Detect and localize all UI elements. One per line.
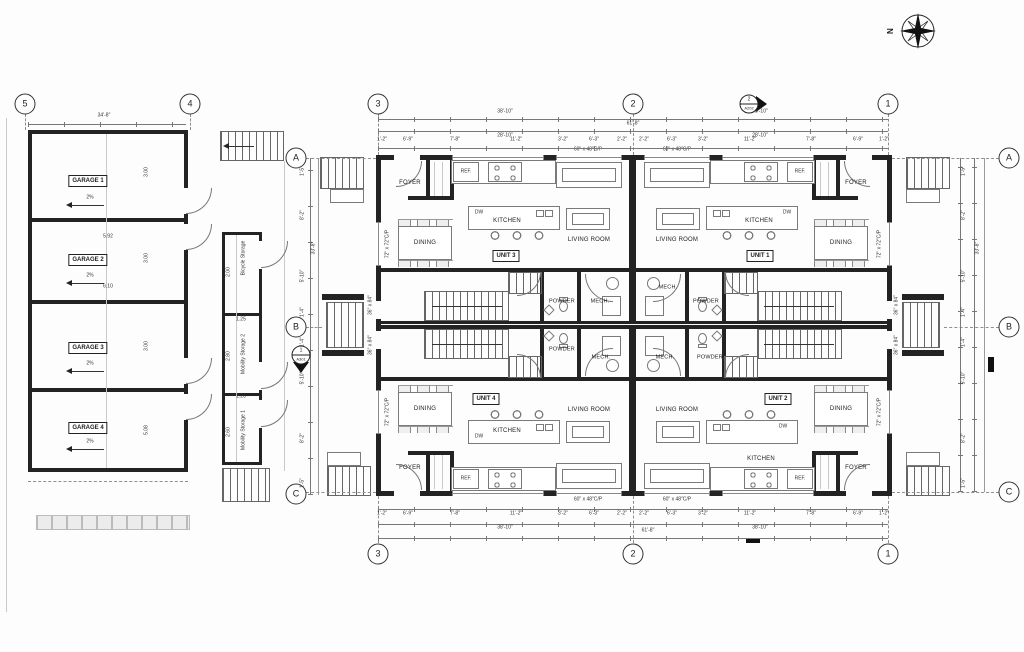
kitchen-label: KITCHEN — [745, 218, 773, 224]
line — [820, 455, 821, 489]
garage-wall — [28, 130, 188, 134]
dim-label: 2.80 — [227, 351, 232, 361]
mech-label: MECH. — [592, 355, 611, 361]
stairs — [326, 302, 364, 348]
dim-label: 34'-8" — [98, 114, 111, 119]
grid-leader-line — [306, 492, 376, 493]
island-sink — [536, 424, 544, 431]
floor-plan-sheet: N 34'-8" GARAGE 1 GARAGE 2 GARAGE 3 GARA… — [0, 0, 1024, 652]
dim-label: 2'-2" — [617, 512, 627, 517]
dining-chairs — [398, 219, 453, 226]
slope-arrow — [72, 205, 104, 206]
party-wall — [381, 321, 887, 329]
coffee-table-top — [572, 213, 604, 225]
wall-opening — [887, 301, 892, 319]
living-room-label: LIVING ROOM — [568, 237, 610, 243]
dim-label: 38'-10" — [497, 526, 513, 531]
line — [434, 455, 435, 489]
grid-bubble-3: 3 — [368, 94, 389, 115]
powder-label: POWDER — [693, 299, 719, 305]
dim-label: 33'-8" — [312, 242, 317, 255]
closet-wall — [812, 451, 840, 455]
dim-label: 1.20 — [236, 395, 246, 400]
dim-label: 33'-8" — [976, 242, 981, 255]
sink — [711, 330, 722, 341]
sink — [711, 304, 722, 315]
wall-opening — [887, 331, 892, 349]
dim-label: 3'-2" — [558, 138, 568, 143]
line — [442, 162, 443, 196]
storage-wall — [222, 462, 262, 465]
line — [432, 306, 502, 307]
stools — [716, 410, 782, 419]
grid-bubble-C: C — [999, 482, 1020, 503]
window — [452, 491, 544, 496]
window-tag: 72" x 72"C/P — [386, 398, 391, 426]
dim-line — [308, 158, 313, 495]
dim-label: 6'-9" — [853, 138, 863, 143]
door-arc — [186, 394, 212, 420]
foyer-wall — [836, 451, 840, 491]
dim-label: 1'-2" — [879, 138, 889, 143]
foyer-label: FOYER — [399, 465, 421, 471]
arrow-head-icon — [66, 280, 72, 286]
garage-3-label: GARAGE 3 — [68, 342, 107, 354]
dining-chairs — [814, 260, 869, 267]
dim-label: 61'-8" — [642, 529, 655, 534]
foyer-wall — [426, 451, 430, 491]
window-tag: 36" x 84" — [369, 295, 374, 315]
arrow-head-icon — [223, 143, 229, 149]
window — [376, 390, 381, 434]
foyer-label: FOYER — [399, 180, 421, 186]
sink — [543, 330, 554, 341]
garage-1-label: GARAGE 1 — [68, 175, 107, 187]
stools — [716, 231, 782, 240]
dim-label: 1'-5" — [301, 478, 306, 488]
dim-label: 3.00 — [145, 253, 150, 263]
living-room-label: LIVING ROOM — [656, 237, 698, 243]
dim-label: 1'-5" — [301, 166, 306, 176]
stairs — [906, 157, 950, 189]
grid-bubble-3: 3 — [368, 544, 389, 565]
interior-wall — [636, 377, 887, 381]
island-sink — [536, 210, 544, 217]
sofa-seat — [562, 469, 616, 483]
stair-landing — [906, 452, 940, 466]
dim-label: 6'-9" — [403, 138, 413, 143]
interior-wall — [577, 272, 581, 321]
island-sink — [722, 210, 730, 217]
dim-label: 61'-8" — [627, 122, 640, 127]
dim-line — [972, 158, 977, 492]
coffee-table-top — [662, 426, 694, 438]
fridge-label: REF. — [461, 170, 472, 175]
dim-label: 3'-2" — [698, 512, 708, 517]
closet-wall — [812, 196, 840, 200]
dim-label: 1'-2" — [377, 512, 387, 517]
dim-line — [378, 146, 888, 151]
grid-bubble-2: 2 — [623, 94, 644, 115]
powder-label: POWDER — [549, 299, 575, 305]
window-tag: 72" x 72"C/P — [878, 398, 883, 426]
dining-chairs — [398, 260, 453, 267]
island-sink — [713, 424, 721, 431]
stairs — [222, 468, 270, 502]
grid-bubble-2: 2 — [623, 544, 644, 565]
door-arc — [186, 358, 212, 384]
interior-wall — [685, 329, 689, 377]
parking-pavers — [36, 515, 190, 530]
dim-label: 5'-10" — [301, 372, 306, 385]
dim-line — [28, 122, 186, 127]
dim-label: 5.92 — [103, 235, 113, 240]
dim-label: 6.10 — [103, 285, 113, 290]
door-arc — [653, 348, 681, 376]
door-arc — [585, 348, 613, 376]
window-tag: 36" x 84" — [895, 335, 900, 355]
arrow-head-icon — [66, 446, 72, 452]
stair-landing — [330, 189, 364, 203]
unit-1-label: UNIT 1 — [746, 250, 773, 262]
dim-label: 1'-5" — [962, 166, 967, 176]
dim-label: 3.00 — [145, 341, 150, 351]
kitchen-label: KITCHEN — [747, 456, 775, 462]
dim-label: 1'-4" — [962, 307, 967, 317]
storage-room-label: Mobility Storage 1 — [242, 410, 247, 450]
dim-label: 6'-3" — [667, 512, 677, 517]
closet-wall — [426, 196, 454, 200]
stair-landing — [327, 452, 361, 466]
slope-arrow — [72, 283, 104, 284]
north-label: N — [887, 28, 895, 34]
toilet — [559, 333, 568, 344]
dining-label: DINING — [414, 240, 436, 246]
dim-label: 1.25 — [236, 318, 246, 323]
door-arc — [186, 224, 212, 250]
dining-label: DINING — [830, 240, 852, 246]
stools — [484, 231, 550, 240]
grid-leader-line — [888, 114, 889, 155]
dining-chairs — [398, 385, 453, 392]
dim-line — [318, 158, 319, 495]
garage-wall — [28, 218, 188, 222]
dim-label: 6'-9" — [403, 512, 413, 517]
line — [432, 344, 502, 345]
dim-label: 11'-2" — [510, 512, 522, 517]
unit-4-label: UNIT 4 — [472, 393, 499, 405]
dim-line — [378, 522, 888, 527]
foyer-wall — [836, 160, 840, 200]
line — [442, 455, 443, 489]
dim-label: 5'-10" — [301, 270, 306, 283]
closet-wall — [426, 451, 454, 455]
dining-label: DINING — [414, 406, 436, 412]
line — [828, 455, 829, 489]
powder-label: POWDER — [549, 347, 575, 353]
dim-label: 3'-2" — [698, 138, 708, 143]
coffee-table-top — [662, 213, 694, 225]
line — [28, 481, 188, 482]
section-cut-bar — [988, 357, 994, 372]
dishwasher-label: DW — [779, 425, 787, 430]
grid-bubble-5: 5 — [15, 94, 36, 115]
foyer-wall — [426, 160, 430, 200]
dining-chairs — [814, 385, 869, 392]
kitchen-label: KITCHEN — [493, 218, 521, 224]
line — [434, 162, 435, 196]
wall-opening — [376, 331, 381, 349]
interior-wall — [577, 329, 581, 377]
window — [556, 491, 622, 496]
dim-label: 11'-2" — [510, 138, 522, 143]
stools — [484, 410, 550, 419]
garage-wall — [28, 388, 188, 392]
garage-4-label: GARAGE 4 — [68, 422, 107, 434]
dim-label: 1'-5" — [962, 478, 967, 488]
storage-room-label: Mobility Storage 2 — [242, 334, 247, 374]
living-room-label: LIVING ROOM — [568, 407, 610, 413]
slope-label: 2% — [86, 362, 93, 367]
sofa-seat — [650, 469, 704, 483]
grid-leader-line — [892, 492, 999, 493]
dim-label: 7'-8" — [806, 512, 816, 517]
stairs — [320, 157, 364, 189]
window — [887, 390, 892, 434]
grid-bubble-1: 1 — [878, 94, 899, 115]
interior-wall — [381, 268, 629, 272]
dim-label: 6'-3" — [667, 138, 677, 143]
dim-label: 7'-8" — [806, 138, 816, 143]
line — [6, 118, 7, 612]
stairs — [902, 302, 940, 348]
stair-wall — [902, 350, 944, 356]
wall-opening — [394, 155, 420, 160]
north-compass-icon — [897, 10, 939, 52]
dim-label: 5.08 — [145, 425, 150, 435]
sofa-seat — [650, 168, 704, 182]
door-arc — [186, 188, 212, 214]
dim-label: 1'-2" — [377, 138, 387, 143]
garage-wall — [28, 468, 188, 472]
arrow-head-icon — [66, 202, 72, 208]
dim-label: 8'-2" — [962, 433, 967, 443]
dim-label: 2.60 — [227, 427, 232, 437]
fridge-label: REF. — [795, 477, 806, 482]
dim-label: 38'-10" — [752, 526, 768, 531]
coffee-table-top — [572, 426, 604, 438]
sink — [543, 304, 554, 315]
dim-label: 1'-4" — [301, 307, 306, 317]
dishwasher-label: DW — [783, 211, 791, 216]
garage-2-label: GARAGE 2 — [68, 254, 107, 266]
stair-landing — [906, 189, 940, 203]
window — [644, 155, 710, 160]
garage-wall — [28, 300, 188, 304]
sofa-seat — [562, 168, 616, 182]
wall-opening — [846, 155, 872, 160]
dim-label: 2'-2" — [639, 138, 649, 143]
mech-label: MECH. — [656, 355, 675, 361]
mech-label: MECH. — [591, 299, 610, 305]
living-room-label: LIVING ROOM — [656, 407, 698, 413]
dim-label: 5'-10" — [962, 270, 967, 283]
window-tag: 36" x 84" — [369, 335, 374, 355]
stove — [744, 469, 778, 489]
dim-line — [378, 129, 888, 134]
grid-bubble-B: B — [286, 317, 307, 338]
dim-line — [984, 158, 985, 492]
dim-label: 6'-9" — [853, 512, 863, 517]
dim-label: 7'-8" — [450, 138, 460, 143]
window-tag: 72" x 72"C/P — [386, 230, 391, 258]
dim-label: 8'-2" — [301, 210, 306, 220]
foyer-label: FOYER — [845, 465, 867, 471]
unit-2-label: UNIT 2 — [764, 393, 791, 405]
wall-opening — [381, 324, 887, 325]
toilet-tank — [698, 344, 707, 348]
dim-label: 7'-8" — [450, 512, 460, 517]
dining-chairs — [814, 426, 869, 433]
grid-bubble-1: 1 — [878, 544, 899, 565]
section-marker-top: 2 A202 — [740, 95, 759, 114]
dim-label: 3.00 — [145, 167, 150, 177]
line — [828, 162, 829, 196]
line — [820, 162, 821, 196]
foyer-label: FOYER — [845, 180, 867, 186]
dim-label: 2.00 — [227, 267, 232, 277]
dishwasher-label: DW — [475, 211, 483, 216]
line — [764, 344, 834, 345]
window — [644, 491, 710, 496]
storage-wall — [222, 232, 262, 235]
marker-number: 1 — [293, 347, 310, 356]
line — [236, 235, 237, 462]
dim-label: 3'-2" — [558, 512, 568, 517]
dim-label: 5'-10" — [962, 372, 967, 385]
arrow-head-icon — [66, 368, 72, 374]
dim-label: 38'-10" — [497, 110, 513, 115]
section-marker-left: 1 A301 — [292, 346, 311, 365]
mech-label: MECH. — [659, 285, 678, 291]
marker-sheet: A301 — [293, 356, 310, 363]
wall-opening — [846, 491, 872, 496]
island-sink — [545, 210, 553, 217]
window-tag: 72" x 72"C/P — [878, 230, 883, 258]
line — [284, 161, 285, 471]
window-tag: 60" x 48"C/P — [663, 498, 691, 503]
dim-label: 6'-3" — [589, 512, 599, 517]
interior-wall — [685, 272, 689, 321]
slope-arrow — [72, 371, 104, 372]
dim-label: 1'-4" — [962, 337, 967, 347]
interior-wall — [636, 268, 887, 272]
dim-label: 11'-2" — [744, 138, 756, 143]
line — [764, 306, 834, 307]
kitchen-label: KITCHEN — [493, 428, 521, 434]
dining-chairs — [398, 426, 453, 433]
island-sink — [713, 210, 721, 217]
stair-wall — [902, 294, 944, 300]
grid-bubble-B: B — [999, 317, 1020, 338]
dim-label: 2'-2" — [617, 138, 627, 143]
grid-leader-line — [306, 158, 376, 159]
window — [376, 222, 381, 266]
grid-leader-line — [888, 496, 889, 543]
window-tag: 36" x 84" — [895, 295, 900, 315]
island-sink — [545, 424, 553, 431]
fridge-label: REF. — [461, 477, 472, 482]
fridge-label: REF. — [795, 170, 806, 175]
grid-bubble-A: A — [999, 148, 1020, 169]
exterior-wall — [887, 155, 892, 496]
dim-line — [378, 536, 888, 541]
grid-bubble-4: 4 — [180, 94, 201, 115]
marker-number: 2 — [741, 96, 758, 105]
grid-leader-line — [892, 158, 999, 159]
unit-3-label: UNIT 3 — [492, 250, 519, 262]
dim-label: 2'-2" — [639, 512, 649, 517]
wall-opening — [376, 301, 381, 319]
grid-leader-line — [25, 114, 26, 130]
wall-opening — [394, 491, 420, 496]
dim-label: 8'-2" — [962, 210, 967, 220]
island-sink — [722, 424, 730, 431]
slope-label: 2% — [86, 274, 93, 279]
window — [556, 155, 622, 160]
interior-wall — [381, 377, 629, 381]
dim-label: 8'-2" — [301, 433, 306, 443]
dining-chairs — [814, 219, 869, 226]
window-tag: 60" x 48"C/P — [574, 498, 602, 503]
stair-wall — [322, 294, 364, 300]
dishwasher-label: DW — [475, 435, 483, 440]
stair-wall — [322, 350, 364, 356]
dim-label: 11'-2" — [744, 512, 756, 517]
grid-leader-line — [190, 114, 191, 130]
stove — [488, 469, 522, 489]
polygon — [900, 13, 936, 49]
arrow-line — [228, 146, 254, 147]
window — [722, 491, 814, 496]
stove — [488, 162, 522, 182]
dim-label: 6'-3" — [589, 138, 599, 143]
slope-label: 2% — [86, 196, 93, 201]
marker-sheet: A202 — [741, 105, 758, 112]
dining-label: DINING — [830, 406, 852, 412]
stove — [744, 162, 778, 182]
slope-arrow — [72, 449, 104, 450]
toilet — [698, 333, 707, 344]
slope-label: 2% — [86, 440, 93, 445]
dim-label: 1'-2" — [879, 512, 889, 517]
powder-label: POWDER — [697, 355, 723, 361]
storage-room-label: Bicycle Storage — [242, 241, 247, 276]
window — [887, 222, 892, 266]
